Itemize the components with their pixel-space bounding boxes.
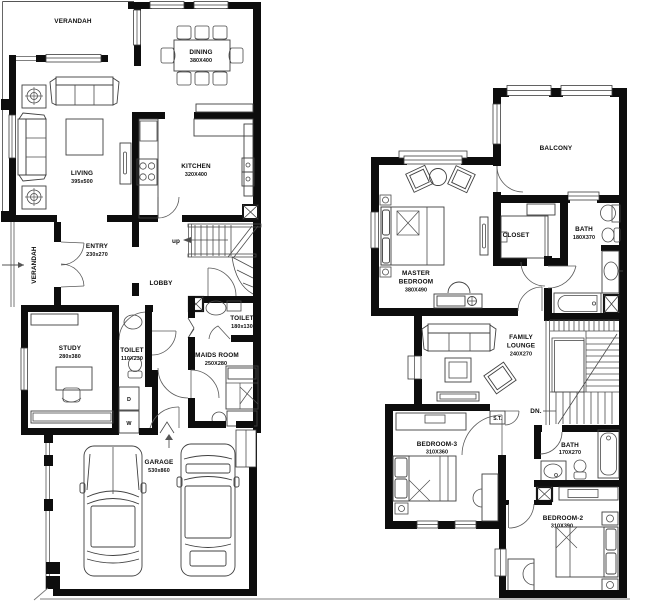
svg-text:395x500: 395x500 [71,179,93,185]
svg-text:LOBBY: LOBBY [149,280,173,287]
svg-text:VERANDAH: VERANDAH [31,246,38,284]
svg-text:310X360: 310X360 [426,450,448,456]
svg-text:MAIDS ROOM: MAIDS ROOM [195,352,239,359]
svg-text:up: up [172,238,180,245]
svg-text:STUDY: STUDY [59,345,82,352]
svg-text:250X280: 250X280 [205,361,227,367]
svg-text:BATH: BATH [561,442,579,449]
svg-text:LOUNGE: LOUNGE [507,343,536,350]
svg-text:DN.: DN. [530,408,542,415]
svg-text:MASTER: MASTER [402,270,430,277]
svg-text:240X270: 240X270 [510,352,532,358]
svg-text:FAMILY: FAMILY [509,334,533,341]
svg-text:230x270: 230x270 [86,252,108,258]
svg-text:BATH: BATH [575,226,593,233]
svg-text:S.T.: S.T. [493,416,502,422]
svg-text:ENTRY: ENTRY [86,243,109,250]
svg-text:320X400: 320X400 [185,172,207,178]
svg-text:180x130: 180x130 [231,324,253,330]
svg-text:BEDROOM: BEDROOM [399,279,433,286]
svg-text:TOILET: TOILET [230,315,254,322]
svg-text:TOILET: TOILET [120,347,144,354]
svg-text:280x380: 280x380 [59,354,81,360]
svg-text:380X490: 380X490 [405,288,427,294]
svg-text:GARAGE: GARAGE [145,459,175,466]
svg-text:380X400: 380X400 [190,58,212,64]
svg-text:VERANDAH: VERANDAH [54,18,92,25]
svg-text:KITCHEN: KITCHEN [181,163,211,170]
svg-text:BEDROOM-2: BEDROOM-2 [543,515,584,522]
svg-text:DINING: DINING [189,49,212,56]
svg-text:W: W [126,421,132,427]
svg-text:170X270: 170X270 [559,450,581,456]
svg-text:D: D [127,397,131,403]
svg-text:180X370: 180X370 [573,235,595,241]
svg-text:530x860: 530x860 [148,468,170,474]
svg-text:LIVING: LIVING [71,170,93,177]
svg-text:BEDROOM-3: BEDROOM-3 [417,441,458,448]
svg-text:BALCONY: BALCONY [540,145,573,152]
